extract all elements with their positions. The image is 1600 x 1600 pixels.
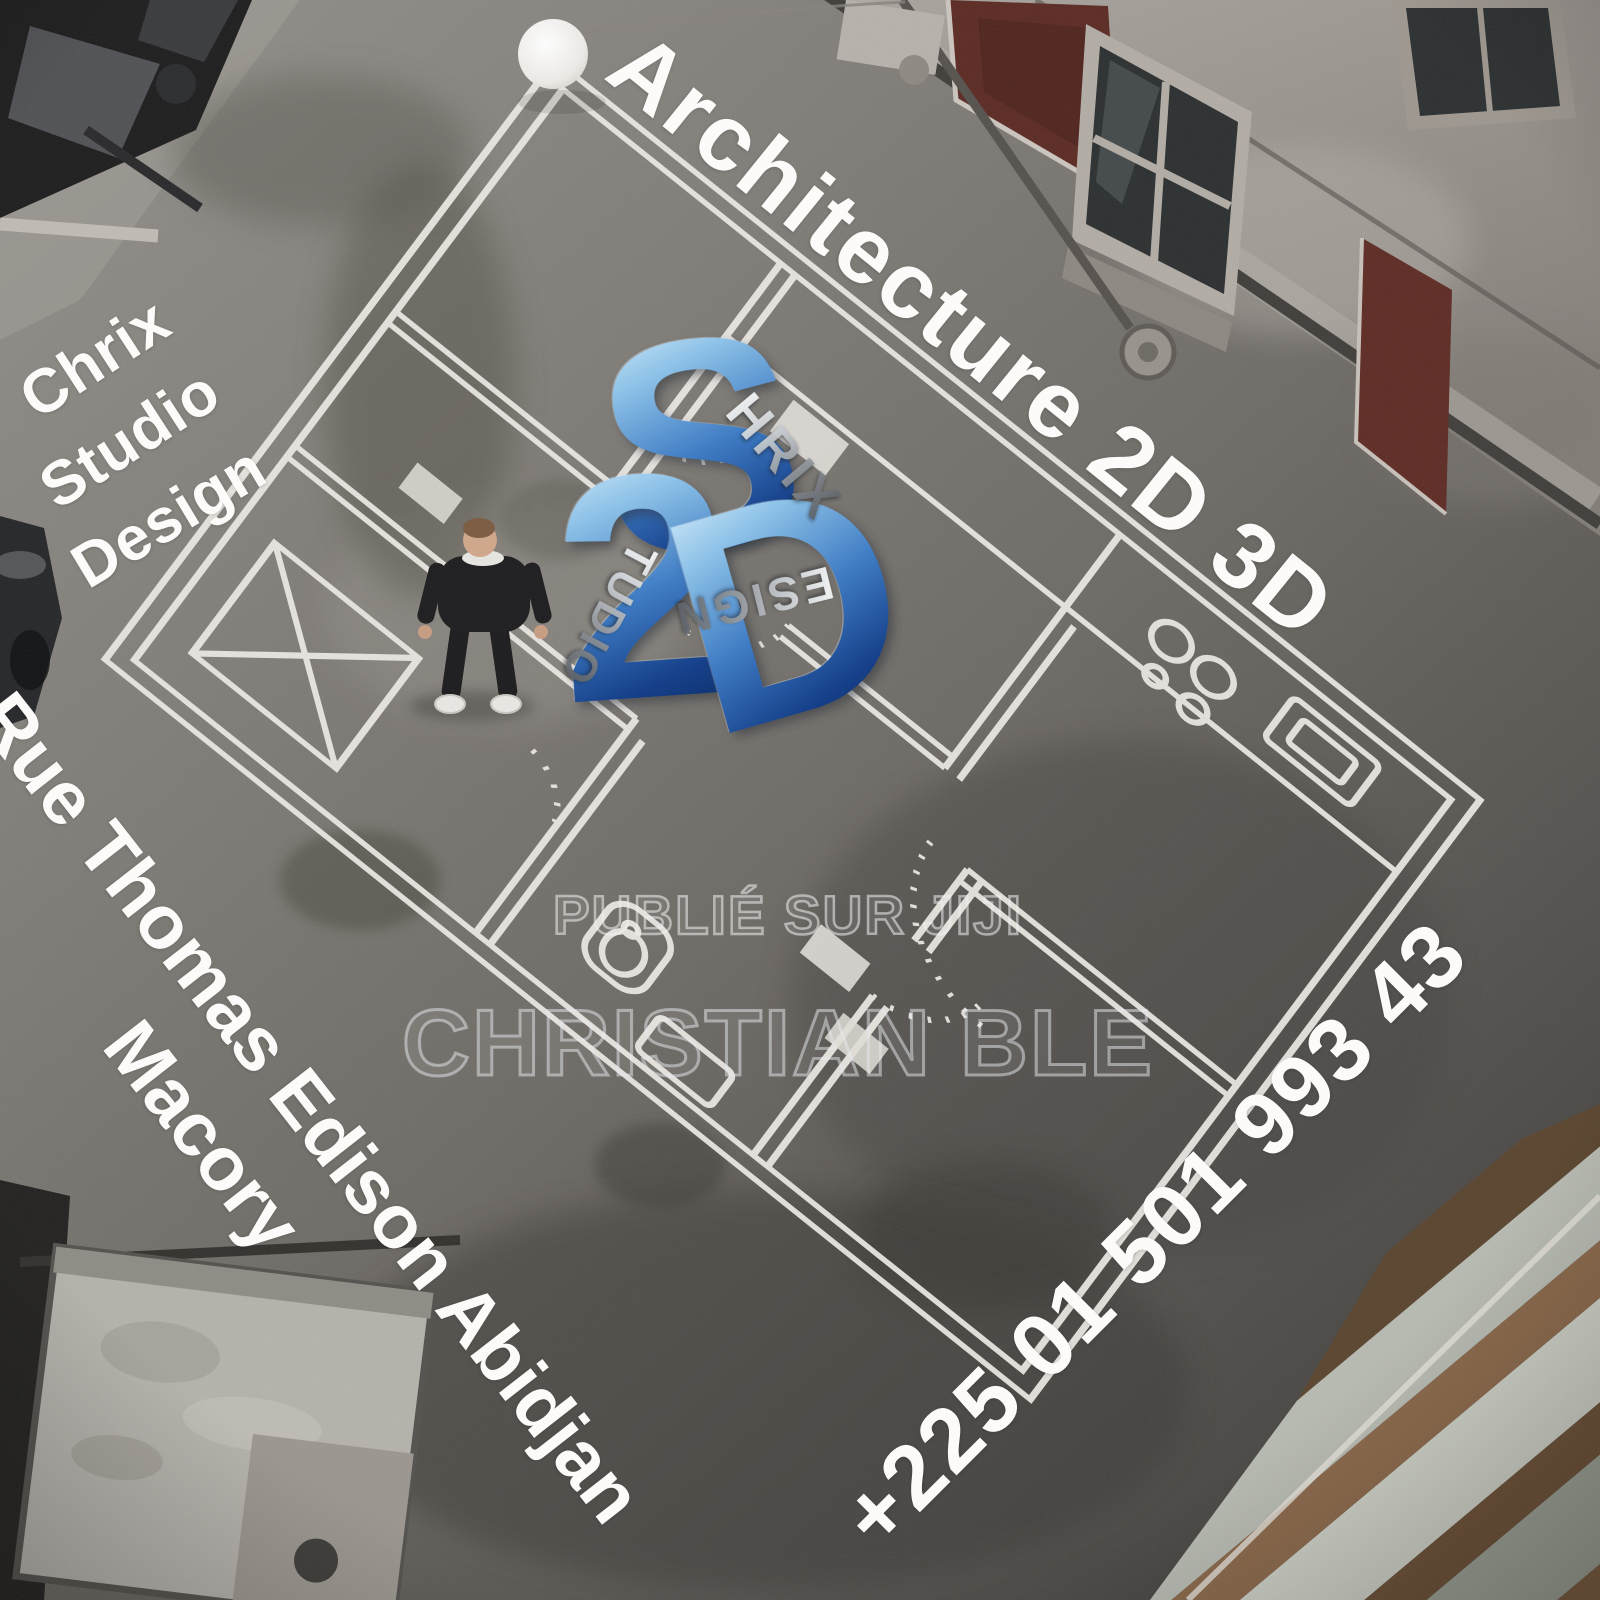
watermark-small: PUBLIÉ SUR JIJI bbox=[553, 888, 1023, 943]
watermark-large: CHRISTIAN BLE bbox=[402, 996, 1154, 1090]
advert-poster: PUBLIÉ SUR JIJI CHRISTIAN BLE S 2 D HRIX… bbox=[0, 0, 1600, 1600]
